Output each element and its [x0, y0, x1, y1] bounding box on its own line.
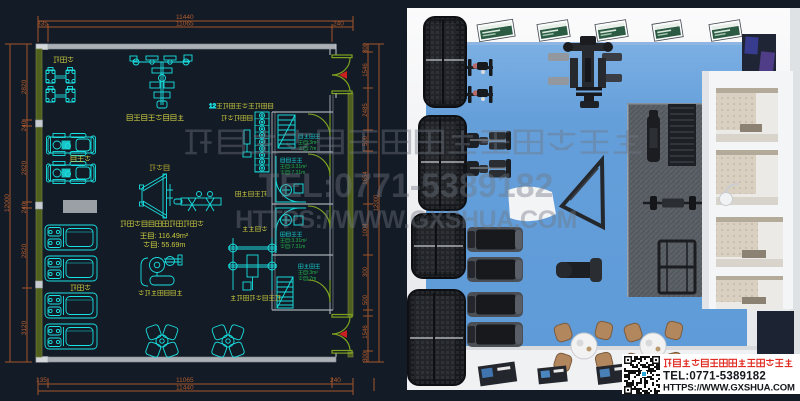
svg-text:500: 500: [363, 294, 369, 305]
svg-text:2485: 2485: [363, 103, 369, 117]
svg-text:HTTPS://WWW.GXSHUA.COM: HTTPS://WWW.GXSHUA.COM: [235, 206, 577, 234]
svg-text:TEL:0771-5389182: TEL:0771-5389182: [259, 167, 554, 205]
svg-text:1546: 1546: [363, 63, 369, 77]
svg-text::7m: :7m: [308, 276, 316, 282]
svg-text:1546: 1546: [363, 325, 369, 339]
svg-text:3120: 3120: [21, 320, 28, 335]
svg-text:TEL:0771-5389182: TEL:0771-5389182: [663, 371, 766, 383]
svg-text:HTTPS://WWW.GXSHUA.COM: HTTPS://WWW.GXSHUA.COM: [663, 383, 795, 394]
svg-text:11440: 11440: [176, 385, 194, 392]
svg-text:11065: 11065: [176, 377, 194, 384]
svg-text:300: 300: [363, 351, 369, 362]
svg-text::7m: :7m: [308, 146, 316, 152]
svg-text:240: 240: [333, 21, 344, 28]
svg-text:2820: 2820: [21, 243, 28, 258]
svg-text:240: 240: [21, 202, 28, 213]
svg-text:240: 240: [330, 377, 341, 384]
svg-text:: 116.49m²: : 116.49m²: [154, 231, 188, 240]
svg-text:12000: 12000: [4, 194, 11, 212]
svg-text:2820: 2820: [21, 79, 28, 94]
svg-text:: 55.69m: : 55.69m: [157, 240, 185, 249]
svg-text:12: 12: [209, 103, 217, 110]
svg-text:300: 300: [363, 42, 369, 53]
svg-text:11065: 11065: [176, 21, 194, 28]
svg-text::7.31m: :7.31m: [290, 244, 305, 250]
svg-text:135: 135: [36, 377, 47, 384]
svg-text:300: 300: [363, 266, 369, 277]
svg-text:2820: 2820: [21, 160, 28, 175]
svg-text:335: 335: [37, 21, 48, 28]
svg-text:240: 240: [21, 120, 28, 131]
